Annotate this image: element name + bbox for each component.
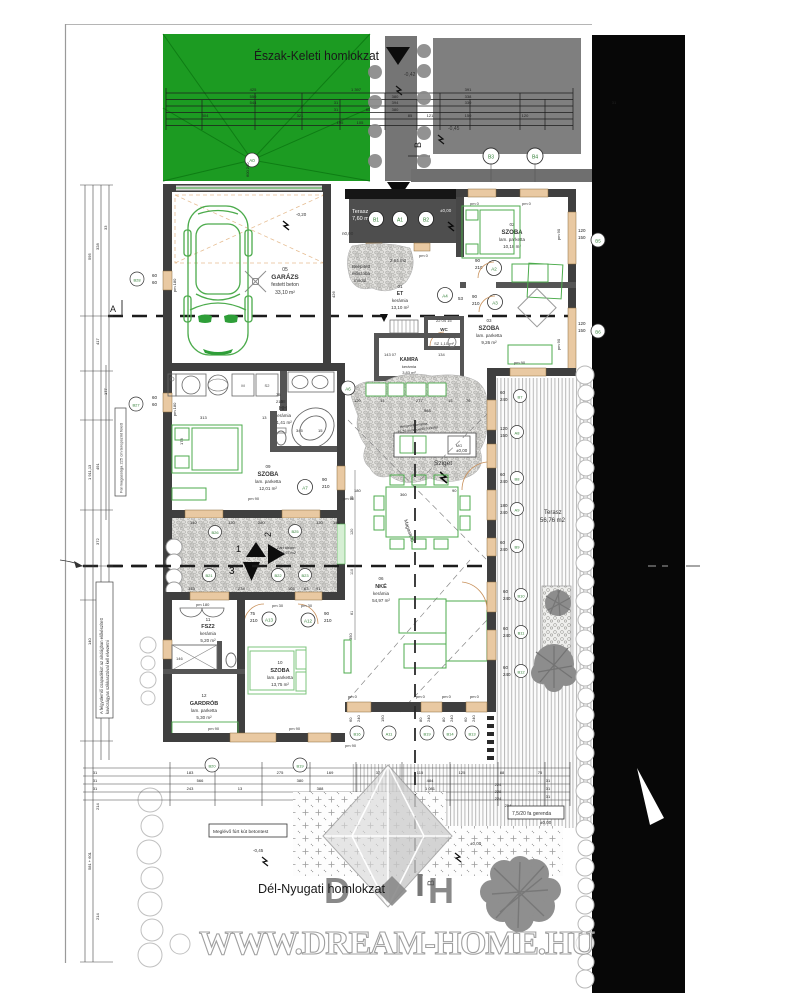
svg-text:12: 12 — [201, 693, 207, 698]
svg-text:550: 550 — [250, 94, 257, 99]
svg-text:5,20 m²: 5,20 m² — [200, 638, 216, 643]
svg-text:60: 60 — [500, 472, 506, 477]
svg-text:121: 121 — [427, 113, 434, 118]
svg-text:180: 180 — [500, 503, 508, 508]
svg-text:240: 240 — [449, 715, 454, 722]
svg-text:A13: A13 — [265, 618, 274, 623]
svg-text:B3: B3 — [488, 155, 494, 161]
svg-text:15: 15 — [448, 398, 453, 403]
svg-text:lam. parketta: lam. parketta — [191, 708, 218, 713]
svg-text:240: 240 — [356, 715, 361, 722]
svg-text:lam. parketta: lam. parketta — [476, 333, 503, 338]
svg-text:24,07 m2: 24,07 m2 — [280, 551, 296, 555]
svg-text:588: 588 — [424, 408, 431, 413]
svg-text:31: 31 — [334, 100, 339, 105]
svg-text:pm 90: pm 90 — [208, 726, 220, 731]
svg-text:60: 60 — [152, 395, 158, 400]
svg-text:103: 103 — [288, 586, 295, 591]
svg-text:pm 90: pm 90 — [556, 228, 561, 240]
svg-text:60: 60 — [503, 589, 509, 594]
svg-text:SZOBA: SZOBA — [479, 326, 501, 332]
svg-text:240: 240 — [500, 397, 508, 402]
svg-text:417: 417 — [95, 338, 100, 345]
svg-text:B2: B2 — [423, 218, 429, 224]
svg-text:90: 90 — [322, 477, 328, 482]
svg-text:240: 240 — [500, 547, 508, 552]
svg-text:NKÉ: NKÉ — [375, 582, 387, 590]
svg-text:214: 214 — [95, 803, 100, 810]
svg-text:484: 484 — [427, 778, 434, 783]
svg-text:150: 150 — [380, 715, 385, 722]
svg-text:±0,00: ±0,00 — [456, 448, 468, 453]
svg-text:240: 240 — [500, 479, 508, 484]
svg-text:GARÁZS: GARÁZS — [271, 272, 299, 281]
svg-text:B4: B4 — [532, 155, 538, 161]
svg-text:B21: B21 — [205, 573, 213, 578]
svg-text:120: 120 — [350, 529, 354, 535]
svg-text:Dél-Nyugati homlokzat: Dél-Nyugati homlokzat — [258, 881, 385, 896]
svg-text:15: 15 — [318, 428, 323, 433]
svg-text:105: 105 — [357, 120, 364, 125]
svg-text:B14: B14 — [446, 732, 454, 737]
svg-text:kerámia: kerámia — [200, 631, 217, 636]
svg-text:31: 31 — [334, 107, 339, 112]
svg-text:B6: B6 — [595, 330, 601, 335]
svg-text:HH: HH — [279, 406, 287, 412]
svg-text:75: 75 — [538, 770, 543, 775]
svg-text:234: 234 — [238, 586, 245, 591]
svg-text:A6: A6 — [345, 387, 351, 392]
svg-text:pm 90: pm 90 — [556, 338, 561, 350]
svg-text:Észak-Keleti homlokzat: Észak-Keleti homlokzat — [254, 48, 379, 63]
svg-text:-0,42: -0,42 — [404, 72, 416, 78]
svg-text:125: 125 — [459, 770, 466, 775]
svg-text:pm 0: pm 0 — [522, 201, 532, 206]
svg-text:146: 146 — [333, 520, 340, 525]
svg-text:06: 06 — [378, 576, 384, 581]
svg-text:3: 3 — [229, 566, 235, 577]
svg-text:M: M — [241, 383, 244, 388]
svg-text:31: 31 — [93, 786, 98, 791]
svg-text:1 397: 1 397 — [351, 87, 362, 92]
svg-text:380: 380 — [392, 107, 399, 112]
svg-text:B25: B25 — [291, 529, 299, 534]
svg-text:63: 63 — [304, 586, 309, 591]
svg-text:modul: modul — [354, 278, 366, 283]
svg-text:A1: A1 — [397, 218, 403, 224]
svg-text:A4: A4 — [442, 294, 448, 299]
svg-text:13: 13 — [238, 786, 243, 791]
svg-text:81: 81 — [350, 611, 354, 615]
svg-text:1: 1 — [236, 544, 241, 554]
svg-text:330: 330 — [465, 100, 472, 105]
svg-text:313: 313 — [200, 415, 207, 420]
svg-text:120: 120 — [578, 228, 586, 233]
svg-text:Terasz: Terasz — [352, 209, 368, 215]
svg-text:pm 180: pm 180 — [196, 602, 210, 607]
svg-text:B13: B13 — [468, 732, 476, 737]
svg-text:pm 0: pm 0 — [442, 694, 452, 699]
svg-text:B19: B19 — [423, 732, 431, 737]
svg-text:±0,00: ±0,00 — [440, 208, 452, 213]
svg-text:380: 380 — [392, 94, 399, 99]
svg-text:491: 491 — [95, 463, 100, 470]
svg-text:146: 146 — [176, 656, 183, 661]
svg-text:B7: B7 — [518, 395, 524, 400]
svg-text:321: 321 — [297, 113, 304, 118]
svg-text:120: 120 — [500, 426, 508, 431]
svg-text:pm 30: pm 30 — [272, 603, 284, 608]
svg-text:90: 90 — [472, 294, 478, 299]
svg-text:391: 391 — [465, 87, 472, 92]
svg-text:566: 566 — [197, 778, 204, 783]
svg-text:13: 13 — [380, 398, 385, 403]
svg-text:31: 31 — [546, 786, 551, 791]
svg-text:A11: A11 — [386, 732, 394, 737]
svg-text:B8: B8 — [515, 477, 521, 482]
svg-text:360: 360 — [400, 492, 407, 497]
svg-text:240: 240 — [471, 715, 476, 722]
svg-text:05: 05 — [282, 267, 288, 273]
svg-text:-0,45: -0,45 — [448, 126, 460, 132]
svg-text:150: 150 — [578, 235, 586, 240]
svg-text:110: 110 — [350, 569, 354, 575]
svg-text:B5: B5 — [595, 239, 601, 244]
svg-text:Fal magassága 225 cm terepszin: Fal magassága 225 cm terepszint felett — [119, 422, 124, 493]
svg-text:60: 60 — [348, 717, 353, 722]
svg-text:22 04 15: 22 04 15 — [436, 318, 452, 323]
svg-text:pm 0: pm 0 — [419, 253, 429, 258]
svg-text:338: 338 — [465, 94, 472, 99]
svg-text:120: 120 — [522, 113, 529, 118]
svg-text:134: 134 — [438, 352, 445, 357]
svg-text:140: 140 — [190, 520, 197, 525]
svg-text:150: 150 — [500, 433, 508, 438]
svg-text:153: 153 — [188, 586, 195, 591]
svg-text:425: 425 — [250, 87, 257, 92]
svg-text:183: 183 — [187, 770, 194, 775]
svg-text:lam. parketta: lam. parketta — [499, 237, 526, 242]
svg-text:544: 544 — [250, 100, 257, 105]
svg-text:56,76 m2: 56,76 m2 — [540, 518, 566, 524]
svg-text:240: 240 — [500, 510, 508, 515]
svg-text:60: 60 — [152, 402, 158, 407]
svg-text:350: 350 — [348, 633, 353, 640]
svg-text:09: 09 — [265, 464, 271, 469]
svg-text:31: 31 — [546, 778, 551, 783]
svg-text:75: 75 — [250, 611, 256, 616]
svg-text:218: 218 — [276, 399, 283, 404]
svg-text:H: H — [428, 870, 454, 911]
svg-text:pm 180: pm 180 — [172, 278, 177, 292]
svg-text:224: 224 — [495, 782, 502, 787]
svg-text:600 240: 600 240 — [245, 162, 250, 177]
svg-text:pm 0: pm 0 — [348, 694, 358, 699]
svg-text:224: 224 — [495, 796, 502, 801]
svg-text:pm 0: pm 0 — [470, 201, 480, 206]
svg-text:A12: A12 — [304, 619, 313, 624]
svg-text:B20: B20 — [208, 764, 216, 769]
svg-text:243: 243 — [187, 786, 194, 791]
svg-text:240: 240 — [503, 633, 511, 638]
svg-text:150: 150 — [465, 113, 472, 118]
svg-text:75: 75 — [276, 392, 281, 397]
svg-text:SZOBA: SZOBA — [258, 472, 280, 478]
svg-text:33,10 m²: 33,10 m² — [275, 290, 295, 296]
svg-text:A2: A2 — [491, 267, 497, 272]
svg-text:177: 177 — [103, 388, 108, 395]
svg-text:210: 210 — [322, 484, 330, 489]
svg-text:B27: B27 — [132, 403, 140, 408]
svg-text:kerámia: kerámia — [392, 298, 409, 303]
svg-text:Zárt átrium: Zárt átrium — [277, 546, 295, 550]
svg-text:11: 11 — [206, 617, 211, 622]
svg-text:A felgyülemlő csapadékot az al: A felgyülemlő csapadékot az alsóágban el… — [99, 617, 104, 714]
svg-text:372: 372 — [95, 538, 100, 545]
svg-text:50: 50 — [350, 496, 354, 500]
svg-text:277: 277 — [416, 398, 423, 403]
svg-text:60: 60 — [152, 273, 158, 278]
svg-text:pm 90: pm 90 — [345, 743, 357, 748]
svg-text:pm 90: pm 90 — [248, 496, 260, 501]
svg-text:festett beton: festett beton — [271, 282, 299, 288]
svg-text:A8: A8 — [515, 431, 521, 436]
svg-text:120: 120 — [316, 520, 323, 525]
svg-text:275: 275 — [277, 770, 284, 775]
svg-text:FSZ2: FSZ2 — [201, 624, 214, 630]
svg-text:304: 304 — [202, 113, 209, 118]
svg-text:Terasz: Terasz — [544, 510, 562, 516]
svg-text:85: 85 — [366, 107, 371, 112]
svg-text:60: 60 — [503, 626, 509, 631]
svg-text:120: 120 — [578, 321, 586, 326]
svg-text:kerámia: kerámia — [402, 364, 417, 369]
svg-text:328: 328 — [95, 243, 100, 250]
svg-text:60: 60 — [152, 280, 158, 285]
svg-text:12,01 m²: 12,01 m² — [259, 486, 277, 491]
svg-text:B16: B16 — [353, 732, 361, 737]
svg-text:169: 169 — [327, 770, 334, 775]
svg-text:31: 31 — [93, 770, 98, 775]
svg-text:31: 31 — [93, 778, 98, 783]
svg-text:210: 210 — [250, 618, 258, 623]
svg-text:03: 03 — [486, 318, 492, 323]
svg-text:150: 150 — [578, 328, 586, 333]
svg-text:240: 240 — [503, 672, 511, 677]
svg-text:9,26 m²: 9,26 m² — [481, 340, 497, 345]
svg-text:91: 91 — [316, 586, 321, 591]
svg-text:240: 240 — [503, 596, 511, 601]
svg-text:394: 394 — [392, 100, 399, 105]
svg-text:B1: B1 — [373, 218, 379, 224]
svg-text:pm 0: pm 0 — [470, 694, 480, 699]
svg-text:KAMRA: KAMRA — [400, 357, 419, 363]
svg-text:B: B — [426, 880, 436, 886]
svg-text:kavicságyas szikkasztóval kell: kavicságyas szikkasztóval kell elvezetni — [105, 640, 110, 714]
svg-text:90: 90 — [324, 611, 330, 616]
svg-text:pm 90: pm 90 — [514, 360, 526, 365]
svg-text:143 07: 143 07 — [384, 352, 397, 357]
svg-text:B11: B11 — [518, 631, 526, 636]
svg-text:380: 380 — [297, 778, 304, 783]
svg-text:A9: A9 — [515, 508, 521, 513]
svg-text:pm 30: pm 30 — [301, 603, 313, 608]
svg-text:B23: B23 — [301, 573, 309, 578]
svg-text:B19: B19 — [296, 764, 304, 769]
svg-text:240: 240 — [426, 715, 431, 722]
svg-text:120: 120 — [354, 398, 361, 403]
svg-text:±0,00: ±0,00 — [540, 820, 552, 825]
svg-text:kerámia: kerámia — [275, 413, 292, 418]
svg-text:31: 31 — [612, 100, 617, 105]
svg-text:7,5/20 fa gerenda: 7,5/20 fa gerenda — [512, 811, 551, 817]
svg-text:kerámia: kerámia — [373, 591, 390, 596]
svg-text:1 081: 1 081 — [425, 786, 436, 791]
svg-text:WC: WC — [440, 327, 448, 332]
svg-text:Meglévő fúrt kút betontest: Meglévő fúrt kút betontest — [213, 829, 269, 835]
svg-text:2,64 m2: 2,64 m2 — [390, 258, 407, 263]
svg-text:581 + 601: 581 + 601 — [87, 851, 92, 870]
svg-text:B28: B28 — [133, 278, 141, 283]
svg-text:13: 13 — [262, 415, 267, 420]
svg-text:210: 210 — [472, 301, 480, 306]
svg-text:B: B — [413, 142, 423, 148]
svg-text:SZOBA: SZOBA — [270, 668, 289, 674]
svg-text:60: 60 — [463, 717, 468, 722]
svg-text:60: 60 — [500, 540, 506, 545]
svg-text:pm 0: pm 0 — [416, 694, 426, 699]
svg-text:280: 280 — [258, 520, 265, 525]
svg-text:A7: A7 — [302, 486, 308, 491]
svg-text:53: 53 — [458, 296, 464, 301]
svg-text:90: 90 — [475, 258, 481, 263]
svg-text:88: 88 — [500, 770, 505, 775]
svg-text:228: 228 — [495, 789, 502, 794]
svg-text:595: 595 — [87, 253, 92, 260]
svg-text:±0,00: ±0,00 — [470, 841, 482, 846]
svg-text:5,30 m²: 5,30 m² — [196, 715, 212, 720]
svg-text:Beépített: Beépített — [352, 264, 371, 269]
svg-text:13,10 m²: 13,10 m² — [391, 305, 409, 310]
svg-text:10: 10 — [277, 660, 283, 665]
svg-text:31: 31 — [546, 794, 551, 799]
svg-text:140: 140 — [87, 638, 92, 645]
svg-text:76: 76 — [466, 398, 471, 403]
svg-text:S2: S2 — [265, 383, 271, 388]
svg-text:178: 178 — [179, 438, 184, 445]
svg-text:10,18 m²: 10,18 m² — [503, 244, 521, 249]
svg-text:1 911,13: 1 911,13 — [87, 464, 92, 480]
svg-text:A0: A0 — [249, 158, 255, 163]
svg-text:n0,00: n0,00 — [342, 231, 354, 236]
svg-text:B22: B22 — [274, 573, 282, 578]
svg-text:-0,45: -0,45 — [253, 848, 264, 853]
svg-text:13,75 m²: 13,75 m² — [271, 682, 289, 687]
svg-text:B10: B10 — [517, 594, 525, 599]
svg-text:SZ 1,10 m²: SZ 1,10 m² — [434, 341, 454, 346]
svg-text:pm 180: pm 180 — [172, 402, 177, 416]
svg-text:90: 90 — [452, 488, 457, 493]
svg-text:2: 2 — [263, 532, 273, 537]
svg-text:pm 90: pm 90 — [289, 726, 301, 731]
svg-text:A: A — [110, 304, 116, 314]
svg-text:-0,20: -0,20 — [296, 212, 307, 217]
svg-text:lam. parketta: lam. parketta — [255, 479, 282, 484]
svg-text:GARDRÓB: GARDRÓB — [190, 699, 218, 707]
svg-text:B9: B9 — [515, 545, 521, 550]
svg-text:210: 210 — [324, 618, 332, 623]
svg-text:B26: B26 — [211, 530, 219, 535]
svg-text:115: 115 — [417, 770, 424, 775]
svg-text:388: 388 — [317, 786, 324, 791]
svg-text:426: 426 — [331, 291, 336, 298]
svg-text:előszoba: előszoba — [352, 271, 371, 276]
svg-text:60: 60 — [503, 665, 509, 670]
svg-text:lam. parketta: lam. parketta — [267, 675, 294, 680]
svg-text:B12: B12 — [517, 670, 525, 675]
svg-text:120: 120 — [228, 520, 235, 525]
svg-text:33: 33 — [103, 225, 108, 230]
svg-text:WWW.DREAM-HOME.HU: WWW.DREAM-HOME.HU — [199, 925, 595, 962]
svg-text:214: 214 — [95, 913, 100, 920]
svg-text:01: 01 — [397, 284, 403, 289]
svg-text:80: 80 — [418, 717, 423, 722]
svg-text:80: 80 — [441, 717, 446, 722]
svg-text:195: 195 — [337, 120, 344, 125]
svg-text:60: 60 — [500, 390, 506, 395]
svg-text:ET: ET — [397, 291, 403, 297]
svg-text:54,97 m²: 54,97 m² — [372, 598, 390, 603]
svg-text:85: 85 — [408, 113, 413, 118]
svg-text:A3: A3 — [492, 301, 498, 306]
